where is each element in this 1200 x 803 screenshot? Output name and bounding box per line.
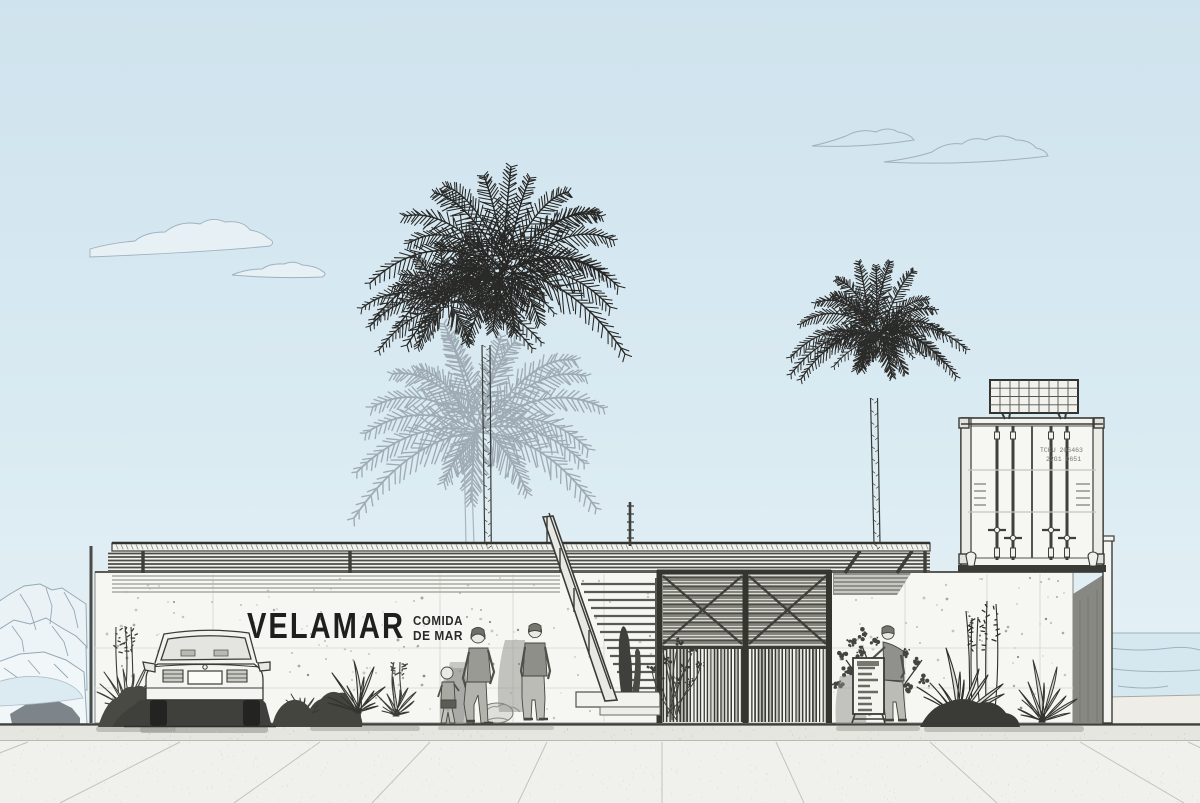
- svg-text:VELAMAR: VELAMAR: [247, 605, 405, 646]
- svg-text:TCKU 206463: TCKU 206463: [1040, 447, 1083, 454]
- svg-text:22G1 0651: 22G1 0651: [1046, 456, 1081, 463]
- svg-text:COMIDA: COMIDA: [413, 613, 463, 628]
- svg-text:DE MAR: DE MAR: [413, 628, 463, 643]
